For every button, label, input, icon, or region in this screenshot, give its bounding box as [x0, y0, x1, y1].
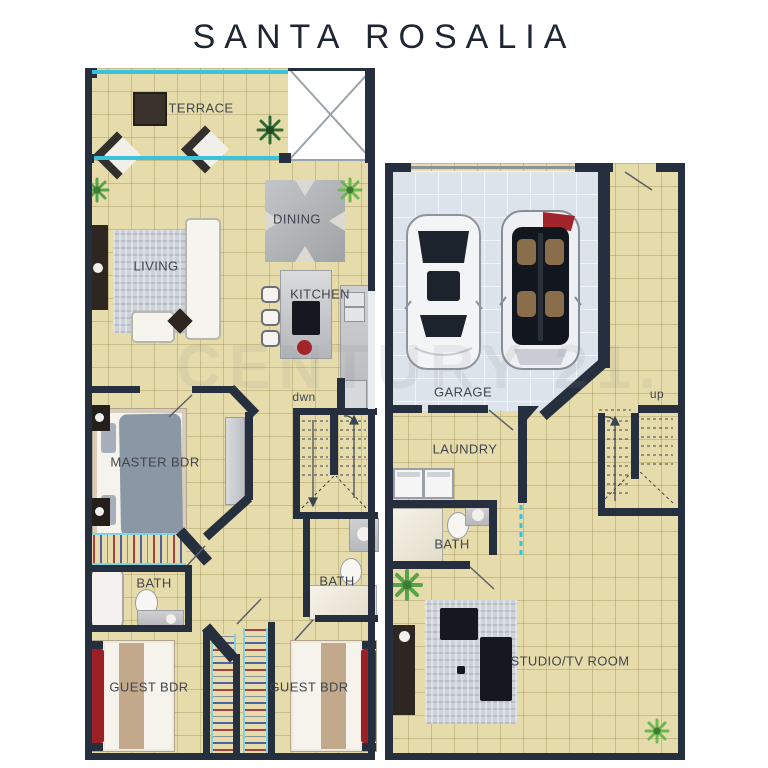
wall-segment — [293, 408, 377, 415]
upper-floor-plan: TERRACE DINING LIVING KITCHEN dwn MASTER… — [85, 68, 375, 760]
room-label-laundry: LAUNDRY — [433, 442, 498, 457]
wall-segment — [385, 405, 422, 413]
wall-segment — [638, 405, 685, 413]
wall-segment — [598, 413, 605, 515]
lower-floor-linework — [385, 163, 685, 760]
wall-segment — [518, 412, 527, 503]
wall-segment — [365, 68, 375, 163]
wall-segment — [92, 386, 140, 393]
page-title: SANTA ROSALIA — [0, 18, 768, 57]
wall-segment — [385, 163, 393, 760]
wall-segment — [656, 163, 685, 172]
garage-door — [411, 166, 575, 169]
room-label-studio: STUDIO/TV ROOM — [511, 654, 630, 669]
room-label-guest-bdr-right: GUEST BDR — [269, 680, 348, 695]
wall-segment — [303, 519, 310, 617]
wall-segment — [428, 405, 488, 413]
wall-segment — [203, 630, 210, 756]
car-white — [405, 215, 482, 369]
stair-divider-wall — [330, 415, 338, 475]
room-label-dining: DINING — [273, 212, 321, 227]
room-label-master-bdr: MASTER BDR — [110, 455, 199, 470]
wall-segment — [385, 500, 497, 508]
glass-wall — [92, 156, 282, 160]
room-label-bath-left: BATH — [136, 576, 171, 591]
wall-post — [85, 154, 94, 163]
room-label-guest-bdr-left: GUEST BDR — [109, 680, 188, 695]
wall-segment — [385, 561, 470, 569]
room-label-kitchen: KITCHEN — [290, 287, 350, 302]
room-label-bath: BATH — [434, 537, 469, 552]
wall-segment — [288, 68, 375, 71]
wall-segment — [85, 68, 92, 760]
wall-segment — [598, 172, 610, 368]
wall-segment — [385, 163, 411, 172]
floorplan-page: SANTA ROSALIA CENTURY 21. — [0, 0, 768, 768]
wall-segment — [233, 654, 240, 756]
wall-segment — [598, 508, 678, 516]
stairs-label-up: up — [650, 387, 664, 401]
car-open-top — [500, 211, 581, 369]
wall-segment — [192, 386, 233, 393]
wall-segment — [385, 753, 685, 760]
wall-segment — [575, 163, 613, 172]
glass-railing — [92, 70, 288, 74]
lower-floor-plan: GARAGE up LAUNDRY BATH STUDIO/TV ROOM — [385, 163, 685, 760]
wall-segment — [678, 163, 685, 760]
room-label-living: LIVING — [133, 259, 178, 274]
wall-segment — [489, 508, 497, 555]
wall-segment — [92, 565, 190, 572]
wall-segment — [293, 512, 378, 519]
wall-segment — [337, 378, 345, 410]
room-label-terrace: TERRACE — [169, 101, 234, 116]
wall-segment — [315, 615, 378, 622]
stair-divider-wall — [631, 413, 639, 479]
window — [368, 290, 375, 410]
wall-segment — [85, 753, 375, 760]
wall-segment — [293, 415, 300, 515]
room-label-garage: GARAGE — [434, 385, 492, 400]
wall-segment — [92, 625, 192, 632]
wall-segment — [245, 412, 253, 500]
wall-segment — [185, 565, 192, 632]
wall-post — [279, 153, 291, 163]
room-label-bath-right: BATH — [319, 574, 354, 589]
stairs-label-dwn: dwn — [292, 390, 315, 404]
